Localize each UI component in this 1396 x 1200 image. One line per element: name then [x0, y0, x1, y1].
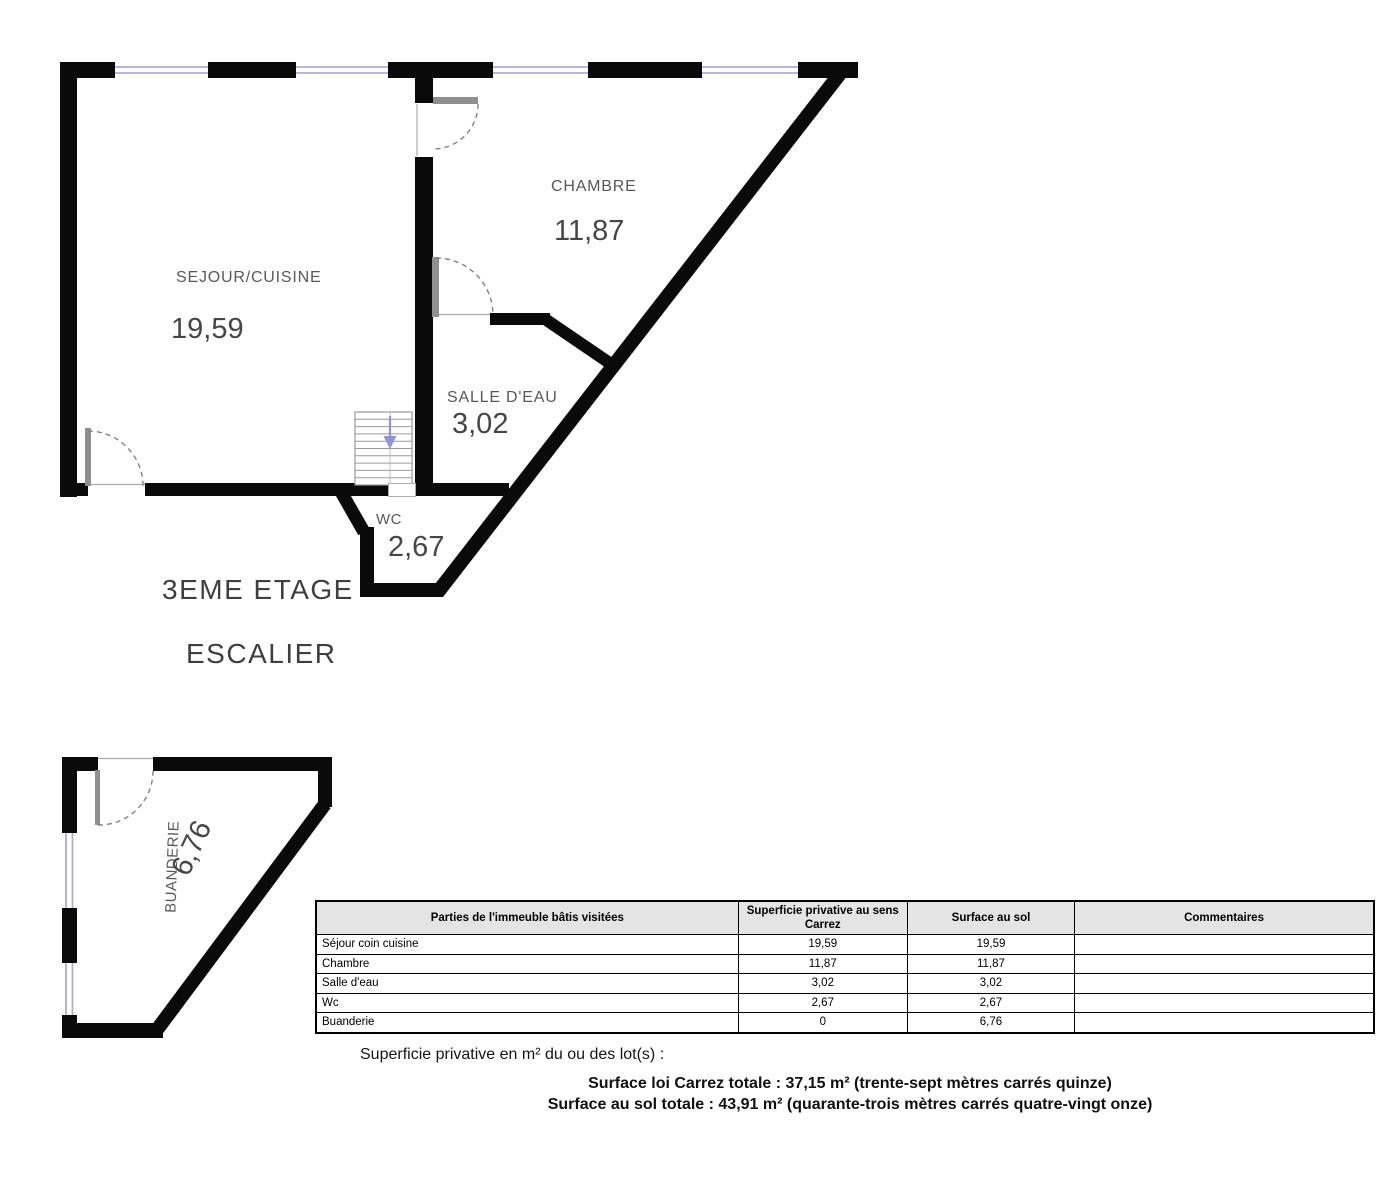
- door-leaf-buanderie: [95, 770, 100, 825]
- cell-room-name: Wc: [316, 993, 738, 1013]
- cell-room-name: Séjour coin cuisine: [316, 935, 738, 955]
- cell-carrez: 0: [738, 1013, 907, 1033]
- stairs: [355, 412, 416, 497]
- cell-room-name: Buanderie: [316, 1013, 738, 1033]
- door-arc-salle-deau: [436, 258, 493, 315]
- cell-surface-sol: 19,59: [907, 935, 1074, 955]
- cell-surface-sol: 3,02: [907, 974, 1074, 994]
- col-header-parties: Parties de l'immeuble bâtis visitées: [316, 901, 738, 935]
- room-area-sejour-cuisine: 19,59: [171, 313, 244, 345]
- col-header-commentaires: Commentaires: [1075, 901, 1374, 935]
- buanderie-walls: [62, 757, 332, 1038]
- cell-surface-sol: 6,76: [907, 1013, 1074, 1033]
- cell-room-name: Salle d'eau: [316, 974, 738, 994]
- plan-subtitle-escalier: ESCALIER: [186, 638, 337, 669]
- cell-comment: [1075, 954, 1374, 974]
- cell-comment: [1075, 974, 1374, 994]
- table-row-wc: Wc 2,67 2,67: [316, 993, 1374, 1013]
- cell-carrez: 3,02: [738, 974, 907, 994]
- cell-surface-sol: 2,67: [907, 993, 1074, 1013]
- cell-carrez: 2,67: [738, 993, 907, 1013]
- table-header-row: Parties de l'immeuble bâtis visitées Sup…: [316, 901, 1374, 935]
- room-area-salle-deau: 3,02: [452, 408, 508, 440]
- door-leaf-sejour: [85, 428, 91, 486]
- cell-room-name: Chambre: [316, 954, 738, 974]
- cell-carrez: 11,87: [738, 954, 907, 974]
- buanderie-door: [95, 770, 153, 825]
- door-arc-sejour: [88, 431, 143, 486]
- door-leaf-salle-deau: [432, 257, 439, 317]
- cell-surface-sol: 11,87: [907, 954, 1074, 974]
- table-row-chambre: Chambre 11,87 11,87: [316, 954, 1374, 974]
- table-row-buanderie: Buanderie 0 6,76: [316, 1013, 1374, 1033]
- door-arc-buanderie: [98, 771, 153, 825]
- carrez-total-line: Surface loi Carrez totale : 37,15 m² (tr…: [320, 1074, 1380, 1095]
- room-label-salle-deau: SALLE D'EAU: [447, 389, 558, 406]
- room-label-chambre: CHAMBRE: [551, 178, 637, 195]
- cell-comment: [1075, 1013, 1374, 1033]
- door-arc-chambre: [433, 104, 478, 149]
- cell-carrez: 19,59: [738, 935, 907, 955]
- room-label-sejour-cuisine: SEJOUR/CUISINE: [176, 269, 321, 286]
- surface-table: Parties de l'immeuble bâtis visitées Sup…: [315, 900, 1375, 1034]
- plan-title: 3EME ETAGE: [162, 574, 354, 605]
- cell-comment: [1075, 935, 1374, 955]
- totals-block: Surface loi Carrez totale : 37,15 m² (tr…: [320, 1074, 1380, 1115]
- table-row-sejour: Séjour coin cuisine 19,59 19,59: [316, 935, 1374, 955]
- top-floor-plan: SEJOUR/CUISINE 19,59 CHAMBRE 11,87 SALLE…: [60, 62, 858, 669]
- col-header-carrez: Superficie privative au sens Carrez: [738, 901, 907, 935]
- document-page: SEJOUR/CUISINE 19,59 CHAMBRE 11,87 SALLE…: [0, 0, 1396, 1200]
- room-area-chambre: 11,87: [554, 215, 624, 247]
- superficie-intro-line: Superficie privative en m² du ou des lot…: [360, 1046, 664, 1064]
- door-leaf-chambre: [433, 97, 478, 104]
- cell-comment: [1075, 993, 1374, 1013]
- room-area-wc: 2,67: [388, 531, 444, 563]
- table-row-salle-deau: Salle d'eau 3,02 3,02: [316, 974, 1374, 994]
- room-label-wc: WC: [376, 511, 402, 528]
- buanderie-floor-plan: BUANDERIE 6,76: [62, 757, 332, 1038]
- col-header-surface-sol: Surface au sol: [907, 901, 1074, 935]
- sol-total-line: Surface au sol totale : 43,91 m² (quaran…: [320, 1095, 1380, 1116]
